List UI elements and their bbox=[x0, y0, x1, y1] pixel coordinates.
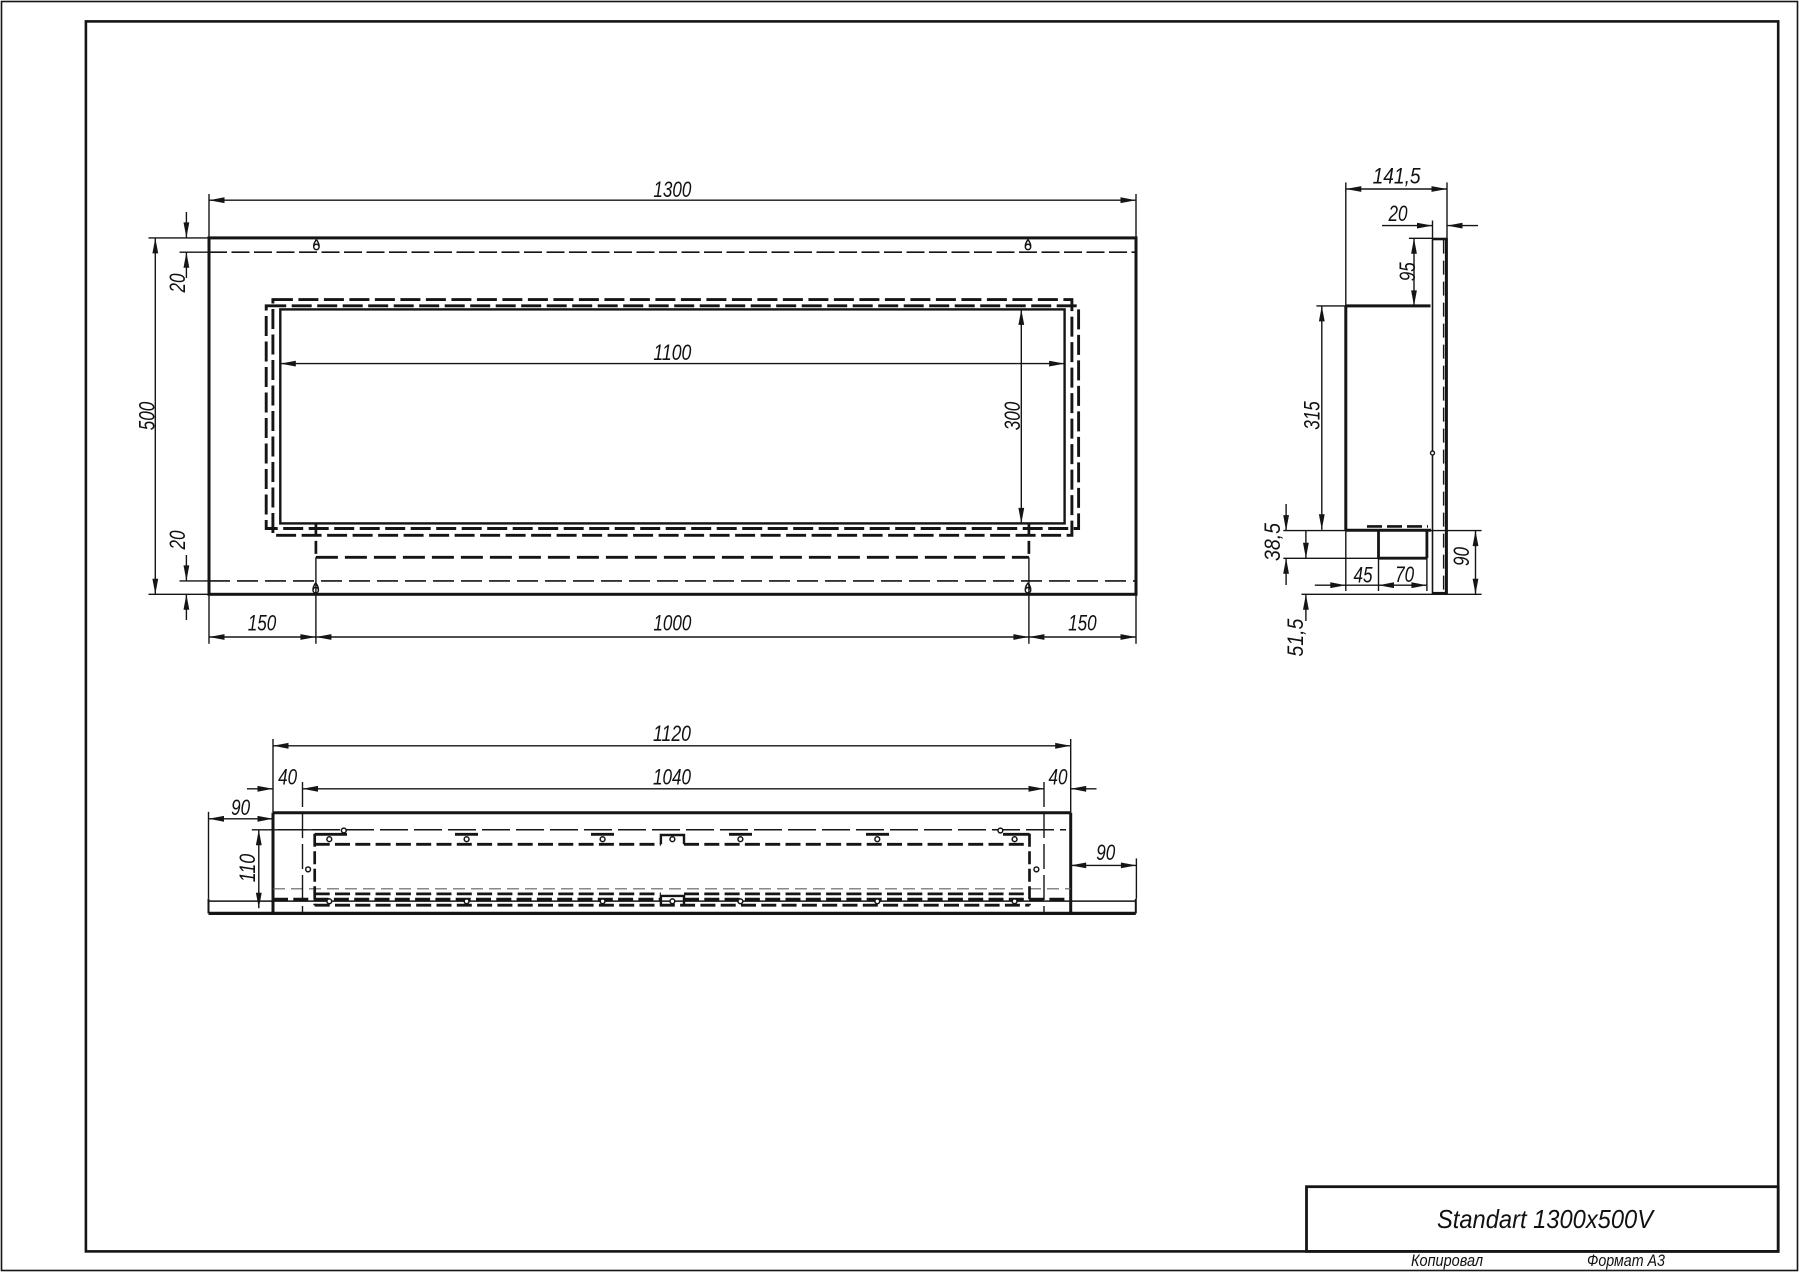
svg-text:90: 90 bbox=[1096, 840, 1115, 865]
svg-text:1040: 1040 bbox=[653, 764, 691, 789]
svg-text:1000: 1000 bbox=[653, 611, 691, 636]
svg-text:Формат А3: Формат А3 bbox=[1587, 1251, 1665, 1270]
svg-text:Standart 1300x500V: Standart 1300x500V bbox=[1437, 1204, 1655, 1234]
svg-text:Копировал: Копировал bbox=[1411, 1251, 1483, 1270]
svg-text:1100: 1100 bbox=[653, 340, 691, 365]
svg-text:95: 95 bbox=[1395, 262, 1420, 281]
svg-text:90: 90 bbox=[231, 795, 250, 820]
svg-text:20: 20 bbox=[165, 273, 190, 293]
svg-text:38,5: 38,5 bbox=[1260, 523, 1285, 561]
svg-text:45: 45 bbox=[1354, 563, 1373, 588]
svg-text:40: 40 bbox=[278, 765, 297, 790]
svg-text:1300: 1300 bbox=[653, 177, 691, 202]
svg-text:110: 110 bbox=[235, 853, 260, 882]
svg-text:315: 315 bbox=[1299, 401, 1324, 430]
svg-text:141,5: 141,5 bbox=[1373, 164, 1421, 189]
svg-text:40: 40 bbox=[1049, 765, 1068, 790]
svg-text:300: 300 bbox=[1000, 401, 1025, 430]
svg-text:150: 150 bbox=[1068, 611, 1097, 636]
svg-text:500: 500 bbox=[134, 401, 159, 430]
svg-text:70: 70 bbox=[1395, 562, 1414, 587]
svg-text:51,5: 51,5 bbox=[1283, 618, 1308, 656]
svg-text:20: 20 bbox=[165, 530, 190, 550]
svg-text:150: 150 bbox=[248, 611, 277, 636]
svg-text:90: 90 bbox=[1449, 547, 1474, 566]
svg-text:20: 20 bbox=[1388, 201, 1408, 226]
svg-text:1120: 1120 bbox=[653, 721, 691, 746]
